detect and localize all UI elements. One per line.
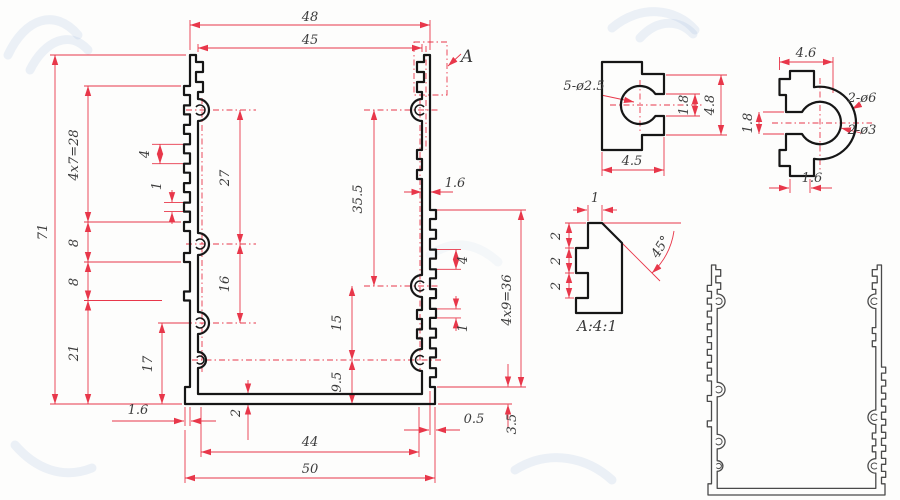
- detail-horseshoe-width: 4.6: [795, 46, 817, 61]
- dim-height: 71: [36, 224, 51, 241]
- dim-boss-gap-bottom-right: 15: [330, 315, 345, 332]
- dim-boss-gap-top-right: 35.5: [351, 185, 366, 214]
- dim-pitch-right: 4: [456, 256, 471, 265]
- detail-a-step2: 2: [549, 257, 564, 266]
- dim-pitch-left: 4: [138, 150, 153, 159]
- dim-wall-right: 1.6: [445, 176, 466, 191]
- clean-profile-holes: [716, 298, 877, 469]
- detail-a-outline: [576, 223, 622, 313]
- detail-a-caption: A:4:1: [575, 317, 617, 335]
- detail-callout-label: A: [459, 47, 473, 67]
- profile-shapes: [184, 55, 886, 495]
- drawing-sheet: 48 45 A 71 4x7=28 8 8 21 17 4 1 27 16 35…: [0, 0, 900, 500]
- dim-floor-thickness: 2: [229, 409, 244, 418]
- dim-serration-left: 4x7=28: [67, 129, 82, 181]
- detail-horseshoe-inner-holes: 2-ø3: [847, 123, 877, 138]
- technical-drawing: 48 45 A 71 4x7=28 8 8 21 17 4 1 27 16 35…: [0, 0, 900, 500]
- detail-screw-boss-width: 4.5: [621, 154, 643, 169]
- dim-overhang-left: 1.6: [128, 403, 149, 418]
- detail-screw-boss-outline: [602, 62, 664, 150]
- detail-a-tooth: 1: [591, 191, 599, 206]
- clean-profile-outline: [707, 265, 885, 495]
- dim-inner-lower-left: 17: [141, 355, 156, 372]
- dim-base-width: 50: [302, 462, 319, 477]
- watermark-stroke: [515, 458, 612, 480]
- detail-horseshoe-outer-holes: 2-ø6: [847, 91, 877, 106]
- detail-horseshoe-lip: 1.6: [802, 171, 823, 186]
- dim-step-b: 8: [67, 278, 82, 286]
- dim-inner-width: 45: [301, 33, 319, 48]
- dim-base-thickness: 3.5: [505, 414, 520, 435]
- dim-tooth-right: 1: [456, 324, 471, 332]
- detail-screw-boss-slot: 1.8: [677, 95, 692, 116]
- dim-lower-left: 21: [67, 345, 82, 363]
- detail-horseshoe-slot: 1.8: [741, 113, 756, 134]
- main-profile-holes: [196, 105, 424, 365]
- dimension-lines: [50, 20, 872, 483]
- main-profile-outline: [184, 55, 436, 404]
- watermark-stroke: [15, 445, 92, 473]
- detail-a-step1: 2: [549, 232, 564, 241]
- detail-screw-boss-holes-label: 5-ø2.5: [563, 79, 604, 94]
- detail-screw-boss-height: 4.8: [703, 95, 718, 117]
- detail-horseshoe-outline: [780, 71, 857, 176]
- dim-inner-width-bottom: 44: [301, 435, 319, 450]
- dim-boss-gap-bottom-left: 16: [218, 276, 233, 293]
- dim-outer-width: 48: [301, 10, 319, 25]
- dim-tooth-left: 1: [150, 182, 165, 190]
- dim-serration-right: 4x9=36: [500, 274, 515, 326]
- dim-overhang-right: 0.5: [464, 412, 485, 427]
- dim-boss-gap-top-left: 27: [218, 169, 233, 187]
- dim-floor-right: 9.5: [330, 372, 345, 393]
- watermark-stroke: [640, 23, 693, 38]
- detail-a-step3: 2: [549, 282, 564, 291]
- dim-step-a: 8: [67, 239, 82, 247]
